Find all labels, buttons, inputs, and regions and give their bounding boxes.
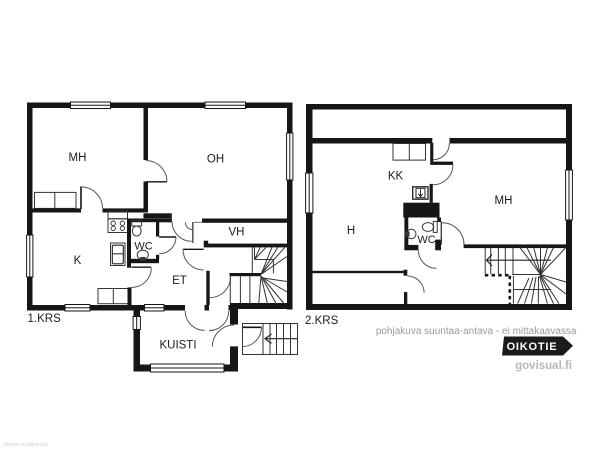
svg-text:KK: KK: [388, 171, 404, 183]
svg-text:WC: WC: [134, 241, 152, 253]
svg-text:MH: MH: [69, 152, 87, 164]
svg-text:VH: VH: [229, 227, 245, 239]
svg-text:K: K: [74, 255, 82, 267]
svg-text:1.KRS: 1.KRS: [28, 313, 62, 325]
svg-text:H: H: [347, 225, 355, 237]
svg-text:ET: ET: [172, 275, 187, 287]
svg-text:oikotie kuvapankki: oikotie kuvapankki: [3, 442, 48, 448]
svg-text:2.KRS: 2.KRS: [305, 315, 339, 327]
svg-text:OIKOTIE: OIKOTIE: [507, 341, 558, 353]
svg-text:govisual.fi: govisual.fi: [515, 360, 572, 372]
svg-text:WC: WC: [417, 234, 435, 246]
svg-text:KUISTI: KUISTI: [159, 340, 196, 352]
svg-text:pohjakuva suuntaa-antava - ei: pohjakuva suuntaa-antava - ei mittakaava…: [376, 326, 577, 337]
svg-text:OH: OH: [207, 154, 224, 166]
svg-text:MH: MH: [495, 195, 513, 207]
